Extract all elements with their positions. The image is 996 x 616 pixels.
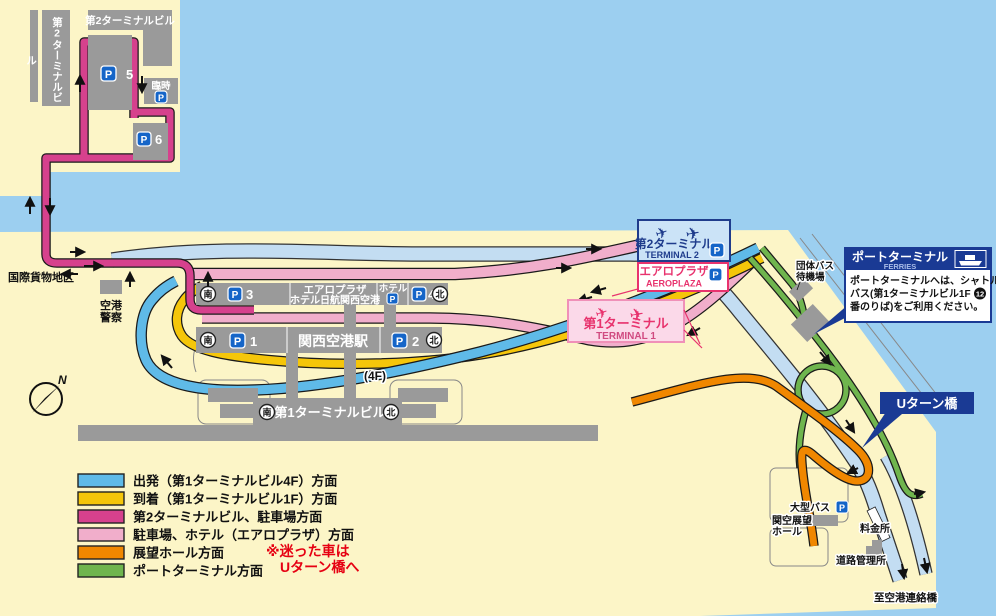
svg-text:P: P [416,290,423,301]
svg-text:P: P [390,294,396,304]
aeroplaza-callout-jp: エアロプラザ [640,264,709,278]
svg-text:2: 2 [412,334,419,349]
aeroplaza-line1: エアロプラザ [304,283,367,296]
legend-swatch-observation [78,546,124,559]
terminal1-building-label: 第1ターミナルビル [274,405,385,420]
svg-text:P: P [714,246,721,257]
airport-access-map: 第2ターミナルビル 臨時 P5 P6 [0,0,996,616]
ferries-en: FERRIES [884,262,917,271]
legend-swatch-arrival [78,492,124,505]
legend-row: 到着（第1ターミナルビル1F）方面 [78,492,337,507]
temp-p-icon: P [155,91,167,103]
terminal2-building-label: 第2ターミナルビル [85,14,175,27]
police-label-1: 空港 [100,298,123,312]
group-bus-label-2: 待機場 [796,271,825,283]
legend-swatch-terminal2 [78,510,124,523]
legend-row: ポートターミナル方面 [78,564,263,579]
svg-text:P: P [232,290,239,301]
station-label: 関西空港駅 [298,333,369,349]
observation-label-1: 関空展望 [772,514,812,527]
group-bus-label-1: 団体バス [796,260,834,272]
svg-text:P: P [712,270,719,281]
legend-label: ポートターミナル方面 [133,564,263,579]
road-office-label: 道路管理所 [836,554,886,567]
aeroplaza-line2: ホテル日航関西空港 [290,294,381,307]
ferry-icon [955,251,986,268]
legend-label: 出発（第1ターミナルビル4F）方面 [133,474,337,489]
lost-car-note-1: ※迷った車は [266,543,350,559]
terminal1-callout-jp: 第1ターミナル [583,316,668,331]
floor-4f-label: (4F) [364,369,386,383]
p3-icon: P3 [228,287,253,302]
map-canvas: 第2ターミナルビル 臨時 P5 P6 [0,0,996,616]
svg-text:P: P [158,93,164,103]
aeroplaza-callout-en: AEROPLAZA [646,279,703,289]
svg-text:P: P [141,135,148,146]
terminal2-callout-jp: 第2ターミナル [635,236,714,251]
svg-text:北: 北 [435,289,444,300]
svg-text:P: P [396,336,403,348]
compass-n: N [58,373,67,387]
p1-icon: P1 [230,333,257,349]
terminal2-p-icon: P [710,243,724,257]
intl-cargo-label: 国際貨物地区 [8,270,74,284]
terminal2-callout: ✈ ✈ 第2ターミナル TERMINAL 2 P [635,220,730,261]
legend-label: 駐車場、ホテル（エアロプラザ）方面 [133,528,354,543]
legend-row: 第2ターミナルビル、駐車場方面 [78,510,322,525]
large-bus-label: 大型バス [790,501,830,514]
ferries-body-1: ポートターミナルへは、シャトル [850,274,996,287]
terminal2-callout-en: TERMINAL 2 [645,250,699,260]
uturn-label: Uターン橋 [897,396,959,411]
terminal1-callout: ✈ ✈ 第1ターミナル TERMINAL 1 [568,300,702,348]
terminal1-callout-en: TERMINAL 1 [596,331,656,342]
hotel-p-icon: P [387,293,398,304]
svg-text:P: P [105,69,112,81]
ferries-body-2: バス(第1ターミナルビル1F [850,287,971,300]
svg-text:南: 南 [262,407,271,418]
legend-row: 駐車場、ホテル（エアロプラザ）方面 [78,528,354,543]
svg-text:1: 1 [250,334,257,349]
ferries-body-3: 番のりば)をご利用ください。 [849,300,983,313]
svg-text:6: 6 [155,132,162,147]
lost-car-note-2: Uターン橋へ [280,559,359,575]
legend-row: 出発（第1ターミナルビル4F）方面 [78,474,337,489]
p6-icon: P6 [137,132,162,147]
svg-text:南: 南 [203,335,212,346]
p2-icon: P2 [392,333,419,349]
hotel-label: ホテル [379,284,408,295]
temporary-parking-label: 臨時 [151,80,171,92]
svg-text:5: 5 [126,67,133,82]
svg-text:3: 3 [246,287,253,302]
legend-swatch-parking [78,528,124,541]
to-bridge-label: 至空港連絡橋 [874,591,937,604]
terminal2-side-building-label: 第2ターミナルビル [44,14,70,106]
legend-label: 第2ターミナルビル、駐車場方面 [133,510,322,525]
police-box [100,280,122,294]
toll-gate-label: 料金所 [860,522,890,535]
terminal1-long-bar [78,425,598,441]
legend-row: 展望ホール方面 [78,546,224,561]
large-bus-p-icon: P [836,501,848,513]
aeroplaza-p-icon: P [709,268,722,281]
observation-hall-box [812,515,838,526]
svg-text:北: 北 [386,407,395,418]
svg-text:北: 北 [429,335,438,346]
stand-12-badge: 12 [976,290,984,299]
legend-label: 到着（第1ターミナルビル1F）方面 [133,492,337,507]
svg-text:南: 南 [203,289,212,300]
observation-label-2: ホール [772,526,802,538]
svg-text:P: P [839,503,845,513]
police-label-2: 警察 [99,310,123,324]
legend-swatch-port [78,564,124,577]
legend-swatch-departure [78,474,124,487]
svg-text:P: P [234,336,241,348]
legend-label: 展望ホール方面 [133,546,224,561]
